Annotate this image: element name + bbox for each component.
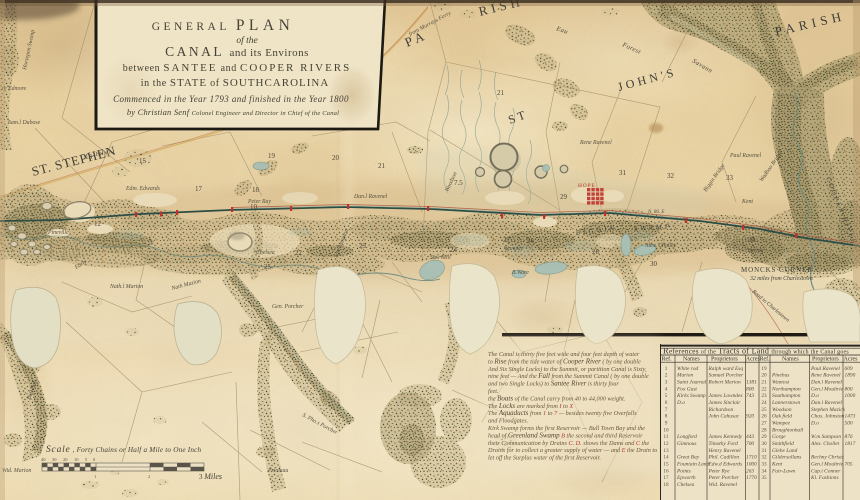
svg-text:And Six Single Locks) to the S: And Six Single Locks) to the Summit, or … [487,366,647,373]
svg-text:Fox Gust: Fox Gust [676,386,697,392]
svg-text:Phil. Cadillon: Phil. Cadillon [708,455,740,461]
svg-text:Richardson: Richardson [708,407,734,413]
svg-text:13: 13 [663,448,669,454]
svg-text:Proprietors: Proprietors [812,357,839,363]
svg-text:20: 20 [63,457,68,462]
svg-text:31: 31 [761,448,767,454]
svg-text:24: 24 [450,246,458,254]
svg-text:Glebe Land: Glebe Land [772,448,798,454]
svg-text:16: 16 [663,468,669,474]
svg-text:re Edmore: re Edmore [2,86,27,92]
svg-text:1473: 1473 [845,414,856,420]
svg-text:James Kennedy: James Kennedy [709,434,743,440]
svg-text:Spring: Spring [748,248,764,254]
svg-text:Woodson: Woodson [772,407,792,413]
svg-text:500: 500 [845,421,853,427]
svg-text:Dan.l Ravenel: Dan.l Ravenel [810,400,842,406]
svg-text:James Sinclair: James Sinclair [709,400,742,406]
svg-text:29: 29 [761,434,767,440]
svg-text:Kent: Kent [771,462,783,468]
svg-text:17: 17 [663,475,669,481]
svg-text:Great Bay: Great Bay [677,455,700,461]
svg-text:7: 7 [665,407,668,413]
svg-text:1770: 1770 [746,475,757,481]
svg-text:D.o: D.o [810,393,819,399]
svg-text:263: 263 [746,468,754,474]
svg-text:Edw.d Edwards: Edw.d Edwards [708,462,743,468]
svg-text:Prioleau: Prioleau [267,468,288,474]
svg-text:Broughtonhall: Broughtonhall [772,427,804,433]
svg-text:James Lowndes: James Lowndes [709,393,743,399]
svg-text:Smithfield: Smithfield [772,440,794,447]
svg-text:Wampee: Wampee [772,421,791,427]
svg-text:Stephen Mazick: Stephen Mazick [811,407,846,413]
svg-text:609: 609 [845,366,853,372]
svg-text:21: 21 [497,89,505,97]
svg-text:CANAL and its Environs: CANAL and its Environs [165,44,309,59]
svg-text:5: 5 [665,393,668,399]
svg-text:30: 30 [761,441,767,447]
svg-text:15: 15 [663,462,669,468]
svg-text:26: 26 [761,414,767,420]
svg-text:24: 24 [761,400,767,406]
svg-text:14: 14 [663,455,669,461]
svg-text:21: 21 [761,380,767,386]
svg-text:1: 1 [94,474,96,479]
svg-text:1381: 1381 [746,380,757,386]
svg-text:Wid. Marion: Wid. Marion [2,468,31,474]
svg-text:25: 25 [264,263,272,271]
svg-text:9: 9 [665,421,668,427]
svg-text:Paul Ravenel: Paul Ravenel [810,366,840,372]
svg-text:23: 23 [761,393,767,399]
svg-text:Edm. Edwards: Edm. Edwards [125,186,161,192]
svg-text:800: 800 [746,386,754,392]
svg-text:920: 920 [746,414,754,420]
svg-text:Nath.l Marion: Nath.l Marion [109,284,143,290]
svg-text:Pineville: Pineville [47,230,69,236]
svg-text:Ralph ward Esq: Ralph ward Esq [708,366,744,372]
svg-text:3 Miles: 3 Miles [199,472,222,481]
svg-text:28: 28 [592,248,600,256]
svg-text:34: 34 [748,236,756,244]
svg-text:27: 27 [503,236,511,244]
svg-text:27: 27 [761,421,767,427]
svg-text:19: 19 [761,366,767,372]
svg-text:800: 800 [845,386,853,392]
svg-text:1000: 1000 [746,462,757,468]
svg-text:1817: 1817 [845,441,856,447]
svg-text:Gen.l Moultrie: Gen.l Moultrie [811,386,844,392]
svg-text:Timothy Ford: Timothy Ford [709,441,739,447]
svg-text:33: 33 [761,462,767,468]
svg-text:700: 700 [746,441,754,447]
svg-text:Kl. Fashions: Kl. Fashions [810,475,839,481]
svg-text:B.Ware: B.Ware [512,270,529,276]
svg-text:Points: Points [676,468,691,474]
svg-text:N. 86. E: N. 86. E [647,210,664,215]
svg-text:Gildersollans: Gildersollans [772,455,801,461]
svg-text:33: 33 [726,174,734,182]
svg-text:Gen.l Moultrie: Gen.l Moultrie [811,462,844,468]
svg-text:Paul Ravenel: Paul Ravenel [729,153,761,159]
svg-text:Alex. Chollet: Alex. Chollet [644,243,676,249]
svg-text:Kent: Kent [741,199,753,205]
svg-text:11: 11 [664,434,669,440]
svg-text:10: 10 [74,457,79,462]
svg-text:in the STATE of SOUTHCAROLINA: in the STATE of SOUTHCAROLINA [141,77,330,89]
svg-text:7.5: 7.5 [454,179,463,187]
svg-text:35: 35 [761,475,767,481]
svg-text:Chelsea: Chelsea [677,482,695,488]
svg-text:Saw Mill: Saw Mill [430,255,451,261]
svg-text:4: 4 [665,386,668,392]
svg-text:20: 20 [761,373,767,379]
svg-text:Rene Ravenel: Rene Ravenel [579,140,612,146]
svg-text:their Communication by Drains: their Communication by Drains C. D. show… [488,440,649,447]
svg-text:Names: Names [683,357,700,363]
svg-text:13: 13 [85,153,93,161]
svg-text:Ref.: Ref. [760,356,771,363]
svg-text:32: 32 [761,455,767,461]
svg-text:6: 6 [665,400,668,406]
svg-text:Acres: Acres [844,357,859,363]
svg-text:Drains for to collect a greate: Drains for to collect a greater supply o… [487,447,657,454]
svg-text:15: 15 [139,157,147,165]
svg-text:32 miles from Charlestown: 32 miles from Charlestown [749,275,813,282]
svg-text:876: 876 [845,434,853,440]
svg-text:Peter Porcher: Peter Porcher [708,475,740,481]
svg-text:Acres: Acres [746,357,761,363]
svg-text:MONCKS CORNER: MONCKS CORNER [741,266,813,274]
svg-text:John Cahusac: John Cahusac [709,414,740,420]
svg-text:Dan.l Ravenel: Dan.l Ravenel [353,194,388,200]
svg-text:Rene Ravenel: Rene Ravenel [810,373,841,379]
svg-text:28: 28 [761,427,767,433]
svg-text:Wid. Ravenel: Wid. Ravenel [709,482,738,488]
svg-text:22: 22 [761,386,767,392]
svg-text:Southampton: Southampton [772,393,801,399]
svg-text:2: 2 [148,474,150,479]
svg-text:Lannerstown: Lannerstown [771,400,800,406]
svg-text:and Floodgates.: and Floodgates. [488,418,528,425]
svg-text:The Aquaducts from 1 to 7 — be: The Aquaducts from 1 to 7 — besides twen… [488,409,637,417]
svg-text:W.m Sampson: W.m Sampson [811,434,841,440]
svg-text:Samuel Porcher: Samuel Porcher [709,373,745,379]
svg-text:Kirks Swamp: Kirks Swamp [676,393,706,399]
svg-text:443: 443 [746,434,754,440]
svg-text:1710: 1710 [746,455,757,461]
svg-text:Peter Rye: Peter Rye [708,468,731,474]
svg-text:D.o: D.o [810,421,819,427]
svg-text:Names: Names [782,357,799,363]
svg-text:of the: of the [236,35,257,46]
svg-text:Longford: Longford [676,433,697,440]
svg-text:Sam.l Dubose: Sam.l Dubose [8,120,41,126]
svg-text:18: 18 [663,482,669,488]
svg-text:Chas. Johnston: Chas. Johnston [811,414,845,420]
svg-text:Commenced in the Year 1793 and: Commenced in the Year 1793 and finished … [113,94,349,104]
svg-text:743: 743 [746,393,754,399]
svg-text:let off the Surplus water of t: let off the Surplus water of the first R… [488,455,601,462]
svg-text:between SANTEE and COOPER RIVE: between SANTEE and COOPER RIVERS [123,62,352,74]
svg-text:and two Single Locks) to Sante: and two Single Locks) to Santee River is… [488,380,619,388]
svg-text:Oak field: Oak field [772,413,792,420]
svg-text:Wantost: Wantost [772,380,790,386]
svg-text:1000: 1000 [845,393,856,399]
svg-text:Scale , Forty Chains or Half a: Scale , Forty Chains or Half a Mile to O… [46,445,202,455]
svg-text:8: 8 [665,414,668,420]
svg-text:Gorge: Gorge [772,434,786,440]
svg-text:10: 10 [663,427,669,433]
svg-text:3: 3 [665,380,668,386]
svg-text:705: 705 [845,462,853,468]
svg-text:21: 21 [378,162,386,170]
svg-text:Alex. Chollet: Alex. Chollet [810,441,840,447]
svg-text:31: 31 [619,169,627,177]
svg-text:Wampee: Wampee [504,246,524,252]
svg-text:Saint Journal: Saint Journal [677,380,707,386]
svg-text:26: 26 [527,237,535,245]
svg-text:23: 23 [359,242,367,250]
svg-text:Fair-Lawn: Fair-Lawn [771,468,796,474]
svg-text:Robert Marion: Robert Marion [708,380,741,386]
svg-text:Cap.t Conner: Cap.t Conner [811,468,841,474]
svg-text:White rod: White rod [677,366,699,372]
svg-text:2: 2 [665,373,668,379]
svg-text:Rechny Christz: Rechny Christz [810,455,845,461]
svg-text:Epworth: Epworth [676,475,696,481]
svg-text:Henry Ravenel: Henry Ravenel [708,448,742,454]
svg-text:30: 30 [650,260,658,268]
svg-text:Northampton: Northampton [771,386,801,392]
svg-text:1: 1 [665,366,668,372]
svg-text:12: 12 [94,220,102,228]
svg-text:to Rise from the tide water of: to Rise from the tide water of Cooper Ri… [488,357,641,365]
svg-text:D.o: D.o [676,400,685,406]
svg-text:Pinehas: Pinehas [771,373,789,379]
svg-text:22: 22 [295,249,303,257]
svg-text:40: 40 [41,457,46,462]
svg-text:Ref.: Ref. [662,356,673,363]
svg-text:32: 32 [667,172,675,180]
svg-text:head of Greenland Swamp B the: head of Greenland Swamp B the second and… [488,431,643,439]
svg-text:30: 30 [52,457,57,462]
svg-text:Proprietors: Proprietors [711,357,738,363]
svg-text:34: 34 [761,468,767,474]
svg-text:1890: 1890 [845,373,856,379]
svg-text:Fountain Land: Fountain Land [676,462,710,468]
svg-text:Dan.l Ravenel: Dan.l Ravenel [810,380,842,386]
svg-text:17: 17 [195,185,203,193]
svg-text:Gen. Porcher: Gen. Porcher [272,304,304,310]
svg-text:12: 12 [663,441,669,447]
svg-text:29: 29 [560,193,568,201]
svg-text:25: 25 [761,407,767,413]
svg-text:Gimnous: Gimnous [677,441,696,447]
svg-text:Chelsea: Chelsea [256,250,275,256]
svg-text:Marion: Marion [676,373,693,379]
